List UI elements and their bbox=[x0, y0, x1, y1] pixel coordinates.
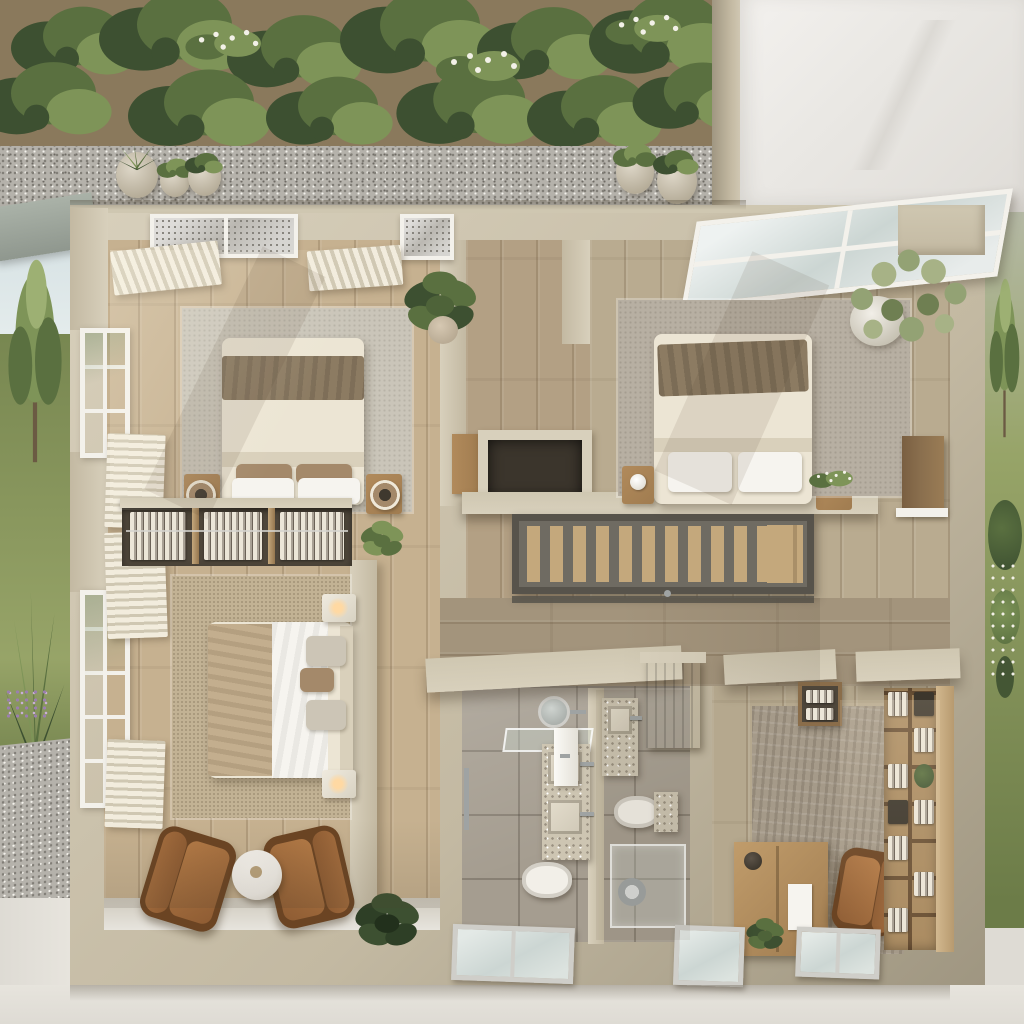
nightstand-cup bbox=[630, 474, 646, 490]
bottom-window-3 bbox=[795, 927, 881, 980]
shelf-box-2 bbox=[888, 800, 908, 824]
shower-drain-head bbox=[618, 878, 646, 906]
bottom-window-1 bbox=[451, 924, 575, 984]
fiddle-leaf-pot bbox=[428, 316, 458, 344]
shelf-linen-2 bbox=[914, 728, 934, 752]
bedroom3-blanket bbox=[657, 339, 809, 396]
bedroom2-blanket bbox=[208, 624, 280, 776]
table-lamp-glow-bottom bbox=[328, 774, 348, 794]
sink-basin-3 bbox=[608, 706, 632, 734]
table-lamp-glow-top bbox=[328, 598, 348, 618]
table-tray-item bbox=[250, 866, 262, 878]
stair-wood-cabinet bbox=[452, 434, 480, 494]
stair-landing-top bbox=[767, 525, 803, 583]
window-mullion bbox=[835, 933, 840, 973]
purple-flower-patch bbox=[4, 688, 50, 718]
shelf-plant bbox=[914, 764, 934, 788]
handrail-bracket bbox=[664, 590, 671, 597]
floorplan-render: { "scene": { "type": "3d-floorplan-cutaw… bbox=[0, 0, 1024, 1024]
left-wall-pier-1 bbox=[70, 208, 108, 330]
shelf-linen-6 bbox=[914, 872, 934, 896]
planter-pot-grass bbox=[116, 152, 158, 198]
window-mullion bbox=[510, 931, 516, 977]
desk-lamp bbox=[744, 852, 762, 870]
wall-nook-wood-panel bbox=[902, 436, 944, 512]
shelf-box-1 bbox=[914, 692, 934, 716]
cubby-linen-2 bbox=[806, 708, 834, 720]
white-wall-streak bbox=[820, 20, 1000, 170]
closet-linen-stack-1 bbox=[130, 512, 186, 560]
yard-tree bbox=[0, 246, 70, 476]
toilet-cistern bbox=[654, 792, 678, 832]
door-handle bbox=[560, 754, 570, 758]
shelving-side-panel bbox=[936, 686, 954, 952]
closet-linen-stack-2 bbox=[204, 512, 262, 560]
right-yard-tree bbox=[985, 268, 1024, 448]
staircase bbox=[512, 514, 814, 594]
wood-pocket-door bbox=[646, 658, 700, 748]
left-gravel-walk bbox=[0, 738, 70, 911]
planter-pot-center-2 bbox=[657, 158, 697, 204]
olive-tree-foliage bbox=[836, 244, 976, 354]
stair-guardrail bbox=[512, 596, 814, 603]
bedroom3-flower-plant bbox=[806, 452, 858, 504]
planter-pot-small-1 bbox=[160, 164, 190, 197]
round-mirror bbox=[538, 696, 570, 728]
pocket-door-track bbox=[640, 652, 706, 663]
closet-divider-1 bbox=[192, 508, 199, 564]
skylight-mullion bbox=[224, 218, 228, 254]
bottom-window-2 bbox=[673, 925, 745, 987]
yard-grasses bbox=[0, 556, 70, 770]
shelf-linen-5 bbox=[888, 836, 908, 860]
wall-nook-ledge bbox=[896, 508, 948, 517]
shelf-linen-7 bbox=[888, 908, 908, 932]
garden-shrubs bbox=[0, 0, 740, 150]
closet-end-plant bbox=[356, 512, 408, 568]
faucet-1 bbox=[580, 762, 594, 766]
pleated-curtain-top-2 bbox=[307, 245, 404, 291]
bedroom2-pillow-accent bbox=[300, 668, 334, 692]
closet-linen-stack-3 bbox=[280, 512, 344, 560]
stair-treads bbox=[527, 526, 773, 582]
shelf-linen-1 bbox=[888, 692, 908, 716]
cubby-linen-1 bbox=[806, 690, 834, 703]
towel-bar bbox=[464, 768, 469, 830]
planter-pot-small-2 bbox=[188, 158, 221, 196]
office-wall-canopy bbox=[723, 649, 836, 685]
house-base-shadow bbox=[70, 985, 950, 1001]
bedroom2-pillow-1 bbox=[306, 636, 346, 666]
desk-plant bbox=[738, 912, 792, 958]
bedroom3-pillow-1 bbox=[668, 452, 732, 492]
side-curtain-stack-3 bbox=[104, 739, 165, 829]
left-wall-pier-2 bbox=[70, 452, 108, 592]
planter-pot-center-1 bbox=[616, 150, 654, 194]
faucet-3 bbox=[630, 716, 642, 720]
closet-top-ledge bbox=[120, 498, 352, 508]
mirror-arm bbox=[570, 710, 586, 714]
toilet-left bbox=[522, 862, 572, 898]
shelf-linen-3 bbox=[888, 764, 908, 788]
closet-divider-2 bbox=[268, 508, 275, 564]
skylight-left-2 bbox=[400, 214, 454, 260]
faucet-2 bbox=[580, 812, 594, 816]
sink-basin-2 bbox=[548, 800, 582, 834]
shelf-linen-4 bbox=[914, 800, 934, 824]
wall-center-pillar bbox=[562, 240, 590, 344]
bedroom3-pillow-2 bbox=[738, 452, 802, 492]
window-mullion bbox=[103, 333, 107, 453]
bedroom3-bed-band bbox=[654, 438, 812, 452]
bedroom1-blanket bbox=[222, 356, 364, 400]
right-yard-flowers bbox=[988, 560, 1020, 680]
sitting-area-plant bbox=[348, 878, 426, 966]
closet-hanging-rail bbox=[126, 530, 348, 532]
speaker-lamp-right bbox=[370, 480, 400, 510]
bedroom2-pillow-2 bbox=[306, 700, 346, 730]
closet-wall-canopy bbox=[856, 648, 961, 682]
garden-wall-shadow bbox=[70, 200, 746, 210]
